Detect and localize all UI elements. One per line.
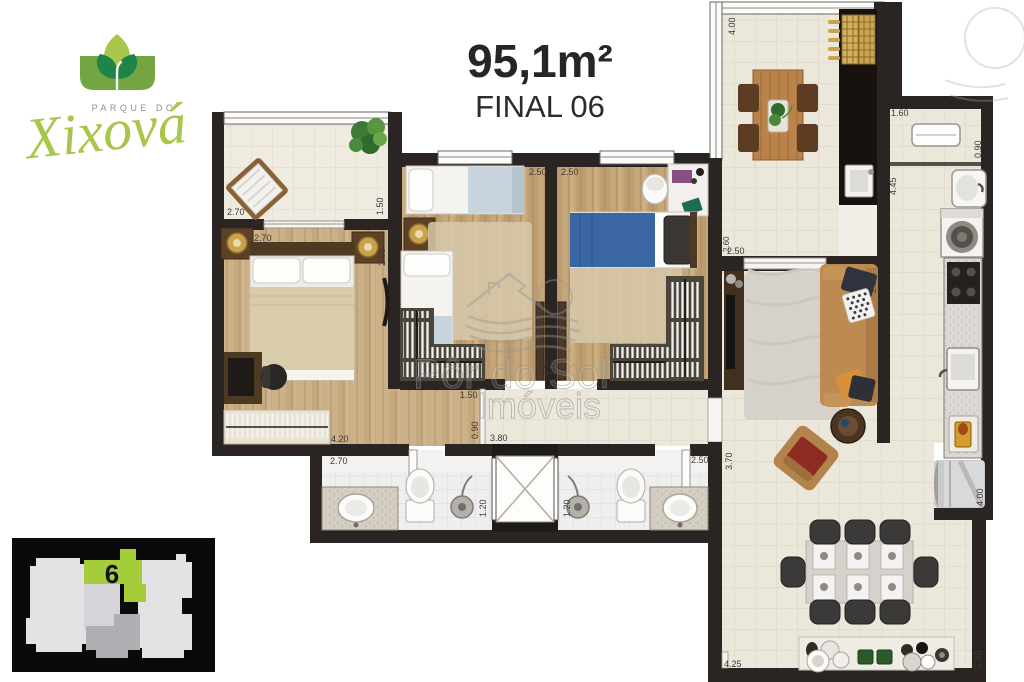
svg-text:Imóveis: Imóveis [477,385,601,426]
svg-text:1.20: 1.20 [478,499,488,517]
svg-text:3.70: 3.70 [724,452,734,470]
svg-text:2.50: 2.50 [529,167,547,177]
svg-text:2.50: 2.50 [691,455,709,465]
svg-text:2.60: 2.60 [377,248,387,266]
svg-text:4.00: 4.00 [727,17,737,35]
svg-text:2.60: 2.60 [722,236,731,252]
svg-text:1.50: 1.50 [375,197,385,215]
svg-text:4.00: 4.00 [975,488,985,506]
svg-text:2.70: 2.70 [227,207,245,217]
svg-text:2.50: 2.50 [868,275,878,293]
svg-text:2.50: 2.50 [561,167,579,177]
svg-text:FINAL 06: FINAL 06 [475,89,605,124]
svg-text:0.90: 0.90 [973,140,983,158]
svg-text:95,1m²: 95,1m² [467,35,613,87]
svg-text:1.60: 1.60 [891,108,909,118]
svg-text:4.45: 4.45 [888,177,898,195]
svg-text:1.20: 1.20 [562,499,572,517]
svg-text:2.50: 2.50 [973,650,983,668]
svg-text:2.70: 2.70 [254,233,272,243]
svg-text:4.20: 4.20 [331,434,349,444]
svg-text:2.70: 2.70 [330,456,348,466]
svg-text:6: 6 [105,559,119,589]
svg-text:4.25: 4.25 [724,659,742,669]
svg-text:3.80: 3.80 [490,433,508,443]
